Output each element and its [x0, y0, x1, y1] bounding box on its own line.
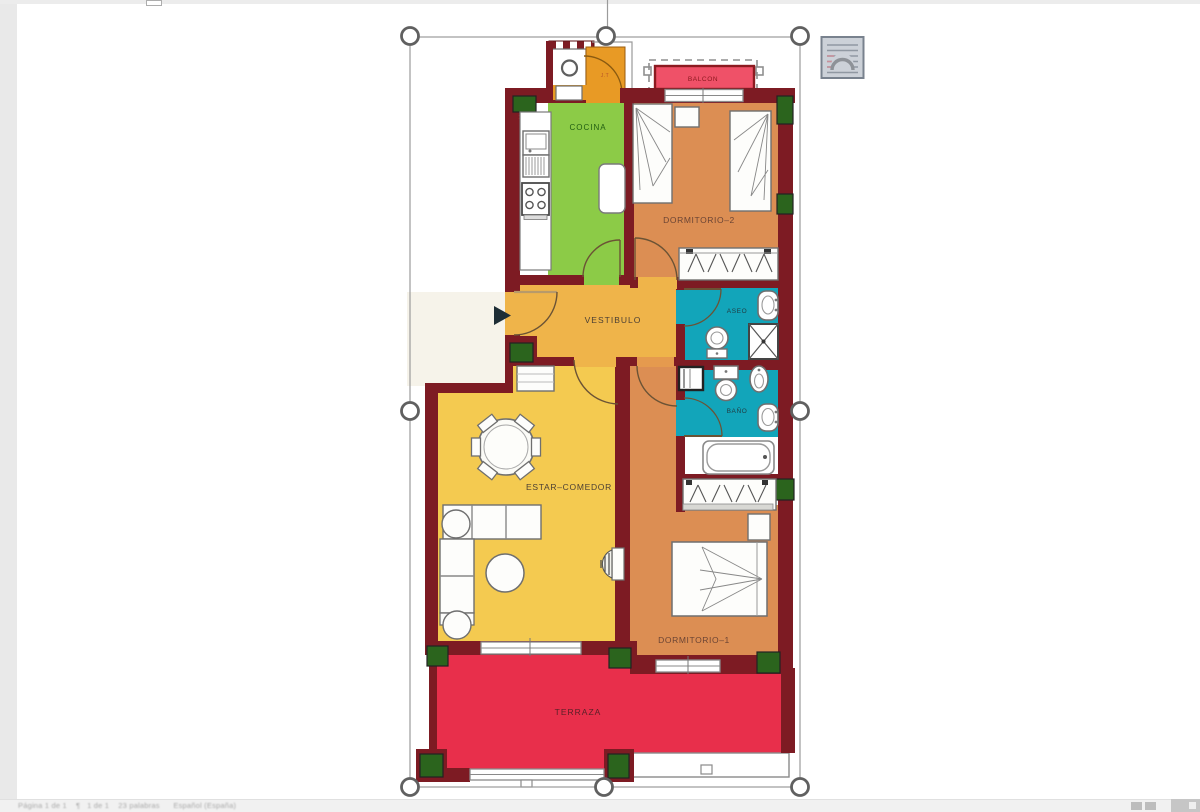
svg-text:ASEO: ASEO	[727, 308, 747, 315]
svg-text:BAÑO: BAÑO	[727, 406, 748, 415]
svg-text:COCINA: COCINA	[569, 123, 606, 132]
svg-text:DORMITORIO–2: DORMITORIO–2	[663, 215, 735, 225]
svg-text:J.T: J.T	[601, 73, 609, 79]
svg-text:VESTIBULO: VESTIBULO	[585, 315, 642, 325]
svg-text:DORMITORIO–1: DORMITORIO–1	[658, 635, 730, 645]
svg-text:BALCON: BALCON	[688, 76, 718, 83]
svg-text:ESTAR–COMEDOR: ESTAR–COMEDOR	[526, 482, 612, 492]
svg-text:TERRAZA: TERRAZA	[555, 707, 602, 717]
